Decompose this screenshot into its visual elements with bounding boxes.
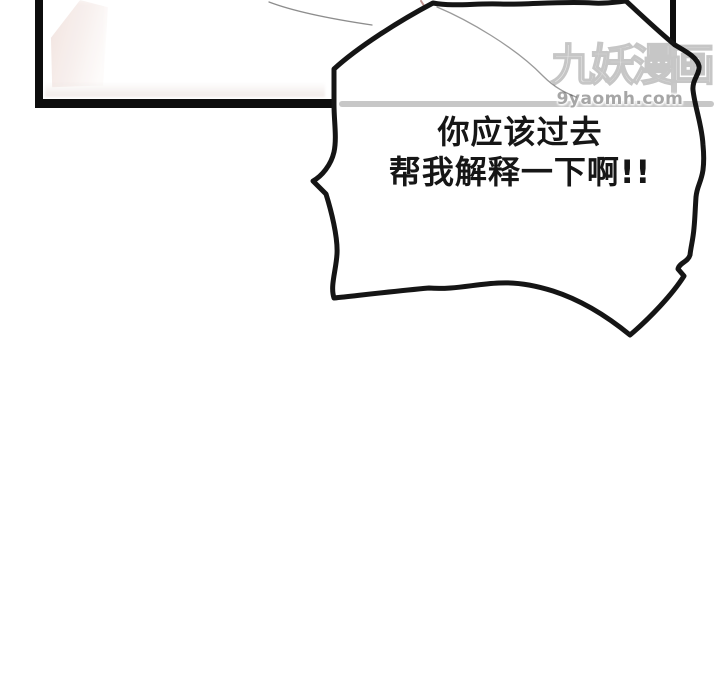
comic-page: 九妖漫画 9yaomh.com 你应该过去 帮我解释一下啊!! — [0, 0, 720, 700]
panel-artwork-curve-line — [269, 2, 372, 25]
speech-line-2: 帮我解释一下啊!! — [340, 152, 700, 192]
artwork-layer — [0, 0, 720, 700]
speech-line-1: 你应该过去 — [340, 112, 700, 152]
speech-bubble-text: 你应该过去 帮我解释一下啊!! — [340, 112, 700, 192]
